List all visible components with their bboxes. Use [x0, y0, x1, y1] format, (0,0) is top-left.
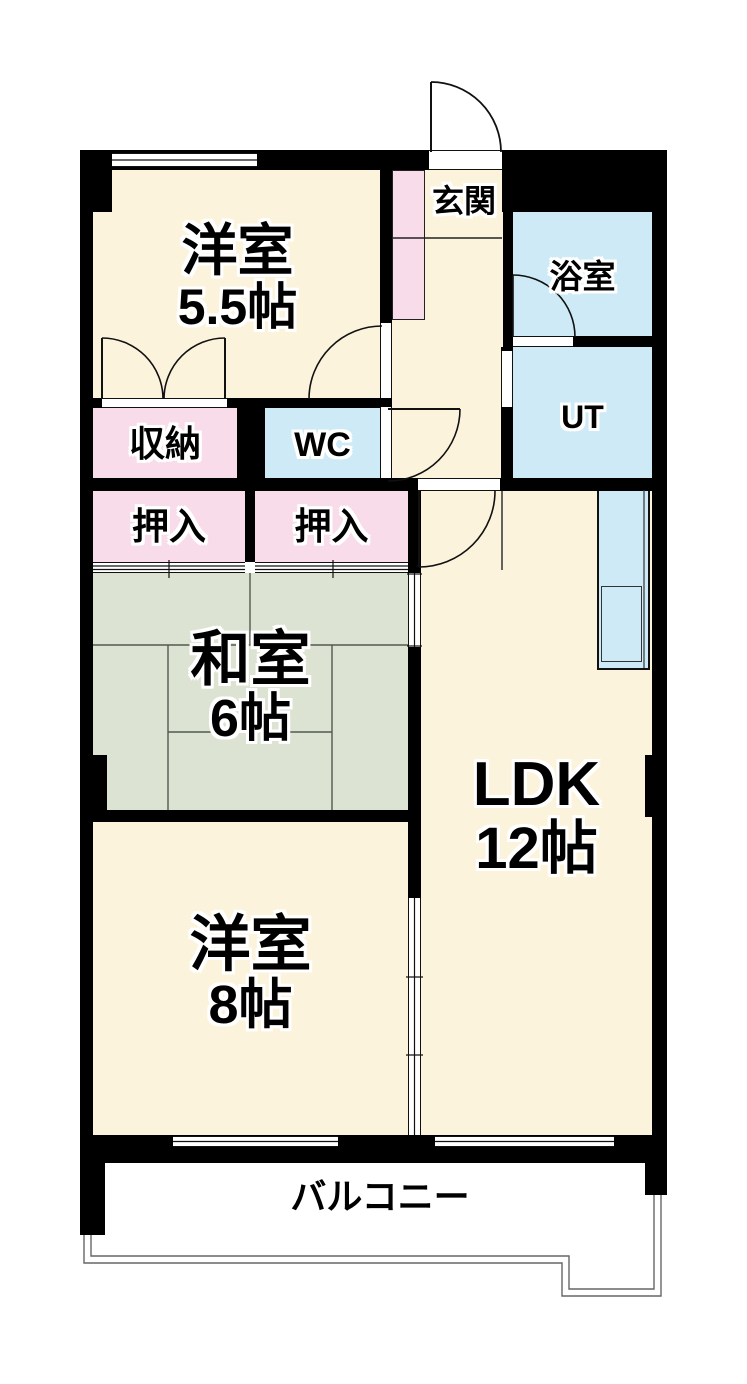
kitchen-sink [601, 586, 642, 662]
sliding-door-japanese-ldk [408, 573, 421, 647]
door-opening-toilet [380, 407, 392, 478]
label-japanese-room: 和室 6帖 [93, 628, 408, 748]
room-name: 洋室 [93, 912, 408, 977]
wall-center-lower-c [408, 822, 421, 898]
label-western-room-large: 洋室 8帖 [93, 912, 408, 1035]
room-name: 浴室 [513, 259, 652, 294]
room-size: 12帖 [421, 818, 652, 880]
room-name: LDK [421, 752, 652, 818]
wall-storage-top-left [80, 398, 102, 408]
sliding-door-western-large-ldk [408, 898, 421, 1135]
floor-plan: 洋室 5.5帖 玄関 浴室 UT WC 収納 押入 押入 和室 6帖 LDK 1… [0, 0, 747, 1384]
wall-left [80, 150, 93, 1163]
room-name: 収納 [93, 425, 237, 464]
room-name: 押入 [255, 507, 408, 547]
label-storage: 収納 [93, 425, 237, 464]
balcony-wall-right [645, 1163, 667, 1195]
entrance-door-arc [431, 82, 501, 152]
label-bathroom: 浴室 [513, 259, 652, 294]
wall-utility-left-bottom [501, 407, 513, 478]
label-closet-right: 押入 [255, 507, 408, 547]
label-ldk: LDK 12帖 [421, 752, 652, 880]
sliding-door-closet-left [93, 562, 245, 573]
wall-japanese-western-divider [80, 810, 421, 822]
label-closet-left: 押入 [93, 507, 245, 547]
label-balcony: バルコニー [190, 1178, 570, 1217]
room-name: 玄関 [404, 184, 524, 218]
door-opening-ldk [418, 478, 500, 491]
label-utility: UT [513, 400, 652, 434]
wall-center-lower-b [408, 647, 421, 810]
room-name: UT [513, 400, 652, 434]
door-opening-bathroom [513, 336, 573, 347]
sliding-door-closet-right [255, 562, 408, 573]
balcony-wall-left [80, 1163, 105, 1235]
window-top [112, 153, 257, 167]
room-name: 洋室 [93, 221, 382, 281]
wall-top-right-block [502, 150, 667, 212]
entrance-door-opening [429, 150, 502, 170]
room-name: 押入 [93, 507, 245, 547]
window-bottom-right [435, 1136, 614, 1147]
room-size: 6帖 [93, 692, 408, 748]
window-bottom-left [173, 1136, 338, 1147]
wall-bathroom-bottom-left [503, 336, 513, 347]
wall-center-lower-a [408, 490, 421, 573]
room-name: 和室 [93, 628, 408, 692]
room-name: WC [265, 427, 380, 463]
label-western-room-small: 洋室 5.5帖 [93, 221, 382, 334]
closet-double-door-opening [102, 398, 227, 408]
wall-top-left-corner [80, 150, 112, 212]
pillar-japanese-room [93, 755, 107, 810]
label-toilet: WC [265, 427, 380, 463]
room-size: 5.5帖 [93, 281, 382, 335]
room-size: 8帖 [93, 977, 408, 1035]
wall-closet-divider [245, 490, 255, 562]
wall-right [652, 150, 667, 1163]
wall-bathroom-bottom-right [573, 336, 667, 347]
wall-mid-band-right [500, 478, 667, 491]
wall-bathroom-left [503, 212, 513, 336]
label-entrance: 玄関 [404, 184, 524, 218]
room-name: バルコニー [190, 1178, 570, 1217]
door-opening-utility [501, 351, 513, 407]
